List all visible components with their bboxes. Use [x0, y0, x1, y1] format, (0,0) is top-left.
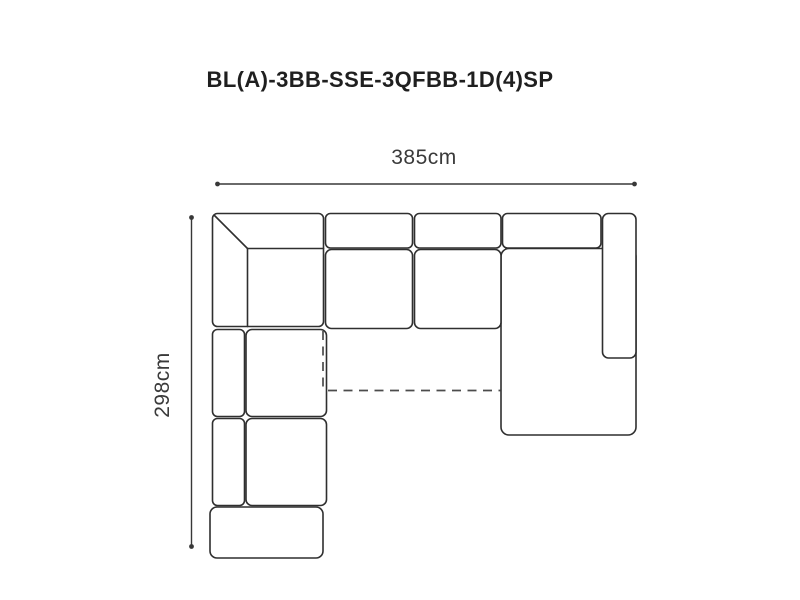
left-backrest-2: [213, 419, 245, 506]
width-dimension: 385cm: [215, 146, 637, 186]
sofa-dimension-diagram: BL(A)-3BB-SSE-3QFBB-1D(4)SP 385cm 298cm: [0, 0, 800, 600]
left-seat-2: [246, 419, 327, 506]
depth-dimension-top-dot: [189, 215, 194, 220]
backrest-cushion-2: [415, 214, 502, 249]
backrest-cushion-3: [503, 214, 602, 249]
depth-dimension-bottom-dot: [189, 544, 194, 549]
width-dimension-left-dot: [215, 182, 220, 187]
sofa-bed-dashed-outline: [323, 331, 501, 391]
seat-cushion-1: [326, 250, 413, 329]
width-dimension-right-dot: [632, 182, 637, 187]
left-backrest-1: [213, 330, 245, 417]
product-code-title: BL(A)-3BB-SSE-3QFBB-1D(4)SP: [207, 67, 554, 92]
sofa-outline: [210, 214, 636, 559]
seat-cushion-2: [415, 250, 502, 329]
width-dimension-label: 385cm: [391, 146, 457, 169]
backrest-cushion-1: [326, 214, 413, 249]
left-seat-1: [246, 330, 327, 417]
depth-dimension-label: 298cm: [151, 352, 174, 418]
right-armrest: [603, 214, 637, 359]
open-end-section: [210, 507, 323, 558]
depth-dimension: 298cm: [151, 215, 194, 549]
diagram-canvas: BL(A)-3BB-SSE-3QFBB-1D(4)SP 385cm 298cm: [0, 0, 800, 600]
